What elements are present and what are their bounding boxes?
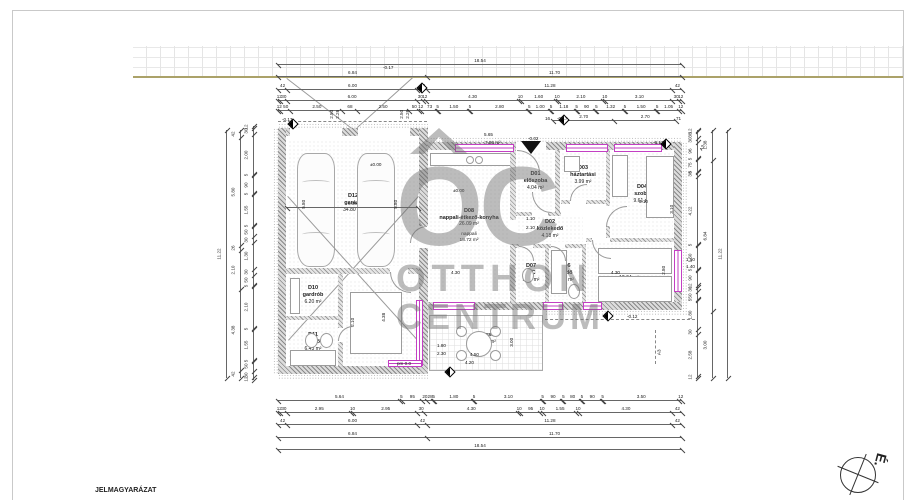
annotation-label: 1.80 xyxy=(437,344,446,349)
dimension-segment: 4.22 xyxy=(698,177,702,245)
room-label: 4.04 m² xyxy=(527,185,544,192)
dimension-segment: 1.32 xyxy=(597,111,624,115)
dimension-label: 95 xyxy=(410,395,415,400)
kitchen-sink xyxy=(475,156,483,164)
annotation-label: 2.50 xyxy=(400,110,405,119)
dimension-label: 4.30 xyxy=(468,95,477,100)
garage-door-opening xyxy=(358,128,410,136)
dimension-segment: 90 xyxy=(582,401,602,405)
annotation-label: 2.26 xyxy=(336,110,341,119)
pavement-texture xyxy=(133,46,903,77)
dimension-segment: 6.84 xyxy=(713,161,717,312)
dimension-label: 5 xyxy=(689,299,694,302)
dimension-label: 6.00 xyxy=(348,95,357,100)
dimension-segment: 3.00 xyxy=(713,312,717,378)
dimension-chain: 12302.0059051.55550301.30305052.1051.555… xyxy=(253,126,258,380)
annotation-label: 7.80 m² xyxy=(485,141,501,146)
dimension-label: 5 xyxy=(245,360,250,363)
dimension-chain: 11.22 xyxy=(226,130,231,378)
dimension-label: 11.28 xyxy=(544,419,555,424)
dimension-label: 4.30 xyxy=(621,407,630,412)
dimension-segment: 2.10 xyxy=(254,286,258,328)
dimension-label: 68 xyxy=(347,105,352,110)
dimension-segment: 11.22 xyxy=(728,130,732,378)
dimension-label: 30 xyxy=(689,330,694,335)
annotation-label: -0.02 xyxy=(528,137,538,142)
dimension-label: 1.55 xyxy=(556,407,565,412)
dimension-label: 12 xyxy=(689,375,694,380)
dimension-segment: 1.55 xyxy=(254,195,258,226)
annotation-label: 4.30 xyxy=(451,271,460,276)
dimension-label: 3.50 xyxy=(637,395,646,400)
annotation-label: -0.17 xyxy=(282,118,292,123)
dimension-chain: 18.54 xyxy=(278,449,682,454)
dimension-segment: 3.10 xyxy=(475,401,543,405)
annotation-label: 4.20 xyxy=(465,361,474,366)
dimension-segment: 42 xyxy=(418,425,427,429)
annotation-label: -0.17 xyxy=(383,66,393,71)
window-marker xyxy=(433,302,475,310)
dimension-label: 11.70 xyxy=(549,71,560,76)
room-label: D02 xyxy=(545,219,555,226)
dimension-label: 30 xyxy=(245,237,250,242)
dimension-segment: 1.80 xyxy=(434,401,473,405)
dimension-segment: 11.70 xyxy=(427,438,682,442)
dimension-label: 1.50 xyxy=(637,105,646,110)
annotation-label: 2.26 xyxy=(406,110,411,119)
room-label: 26.09 m² xyxy=(459,221,479,228)
door-opening xyxy=(510,220,516,244)
room-label: D10 xyxy=(308,285,318,292)
terrace-chair xyxy=(490,326,501,337)
partition xyxy=(555,150,560,216)
dimension-label: 42 xyxy=(675,407,680,412)
dimension-label: 6.00 xyxy=(348,202,357,207)
dimension-label: 1.55 xyxy=(245,206,250,215)
dimension-label: 11.22 xyxy=(218,248,223,259)
dimension-label: 1.80 xyxy=(689,311,694,320)
dimension-label: 18.54 xyxy=(474,59,486,64)
dimension-label: 2.00 xyxy=(245,150,250,159)
partition xyxy=(582,246,586,302)
bed xyxy=(598,276,672,302)
dimension-chain: 2.702.70 xyxy=(553,120,676,125)
annotation-label: 1.50 xyxy=(686,258,695,263)
dimension-label: 2.50 xyxy=(379,105,388,110)
dimension-label: 1.18 xyxy=(559,105,568,110)
room-label: 4.18 m² xyxy=(542,233,559,240)
dashed-section-line xyxy=(655,330,656,364)
room-label: 18.72 m² xyxy=(460,238,479,244)
partition xyxy=(286,316,338,320)
annotation-label: 3.00 xyxy=(510,338,515,347)
dimension-segment: 95 xyxy=(402,401,423,405)
dimension-label: 5 xyxy=(473,395,476,400)
dimension-label: 1.30 xyxy=(245,252,250,261)
partition xyxy=(338,274,343,366)
dimension-label: 2.50 xyxy=(312,105,321,110)
dimension-label: 90 xyxy=(584,105,589,110)
dimension-label: 26 xyxy=(232,245,237,250)
annotation-label: -0.17 xyxy=(653,141,663,146)
dimension-label: 80 xyxy=(570,395,575,400)
terrace-chair xyxy=(490,350,501,361)
dimension-label: 1.05 xyxy=(664,105,673,110)
dimension-label: 1.60 xyxy=(534,95,543,100)
dimension-chain: 426.004211.2842 xyxy=(278,89,682,94)
floor-plan-sheet: OC OTTHON CENTRUM JELMAGYARÁZAT É. D12ga… xyxy=(0,0,915,500)
dimension-chain: 5.64595202851.8053.1059058059053.5012 xyxy=(278,400,682,405)
dimension-label: 75 xyxy=(689,163,694,168)
annotation-label: -0.12 xyxy=(627,315,637,320)
annotation-label: ±0.00 xyxy=(453,189,464,194)
dimension-label: 1.50 xyxy=(449,105,458,110)
dimension-label: 90 xyxy=(550,395,555,400)
dimension-label: 18.54 xyxy=(474,444,486,449)
annotation-label: 2.10 xyxy=(526,226,535,231)
dimension-label: 42 xyxy=(232,372,237,377)
sheet-border-right xyxy=(903,10,904,500)
room-label: előszoba xyxy=(524,178,548,185)
annotation-label: 3.10 xyxy=(639,200,648,205)
dimension-label: 95 xyxy=(528,407,533,412)
dimension-segment: 2.95 xyxy=(287,413,351,417)
annotation-label: 16 xyxy=(545,117,550,122)
wall-left xyxy=(278,128,286,374)
dimension-label: 5 xyxy=(550,105,553,110)
dashed-terrain-line xyxy=(545,319,695,320)
dimension-label: 50 xyxy=(245,364,250,369)
dimension-segment: 4.30 xyxy=(426,101,519,105)
dimension-label: 5 xyxy=(245,225,250,228)
dimension-label: 6.84 xyxy=(348,432,357,437)
dimension-label: 3.10 xyxy=(504,395,513,400)
annotation-label: 2.80 xyxy=(662,266,667,275)
annotation-label: pm 0.0 xyxy=(397,362,411,367)
dimension-label: 12 xyxy=(245,376,250,381)
dimension-label: 2.10 xyxy=(576,95,585,100)
dimension-label: 96 xyxy=(689,148,694,153)
room-label: közlekedő xyxy=(537,226,564,233)
dimension-segment: 73 xyxy=(422,111,437,115)
kitchen-sink xyxy=(466,156,474,164)
dimension-segment: 12 xyxy=(698,376,702,378)
window-marker xyxy=(543,302,563,310)
dimension-segment: 42 xyxy=(673,413,682,417)
dimension-segment: 42 xyxy=(673,425,682,429)
corner-window-marker xyxy=(416,300,423,366)
dimension-label: 50 xyxy=(245,278,250,283)
dimension-label: 12 xyxy=(678,395,683,400)
dimension-label: 42 xyxy=(675,84,680,89)
dimension-segment: 1.55 xyxy=(543,413,577,417)
room-label: háztartási xyxy=(570,172,596,179)
dimension-label: 3.00 xyxy=(704,340,709,349)
dimension-label: 3.10 xyxy=(635,95,644,100)
wall-bottom-left xyxy=(278,366,428,374)
dimension-label: 12 xyxy=(678,105,683,110)
annotation-label: 3.10 xyxy=(670,205,675,214)
annotation-label: -0.17 xyxy=(557,117,567,122)
toilet xyxy=(522,268,534,283)
sheet-border-left xyxy=(12,10,13,500)
dimension-label: 30 xyxy=(689,138,694,143)
dimension-label: 4.22 xyxy=(689,206,694,215)
annotation-label: 2.10 xyxy=(351,318,356,327)
dimension-segment: 2.58 xyxy=(698,335,702,377)
dimension-label: 5 xyxy=(562,395,565,400)
partition xyxy=(545,248,549,302)
dimension-chain: 123830965755304.2251.5059012305051.80302… xyxy=(697,130,702,378)
dimension-segment: 1.05 xyxy=(658,111,680,115)
annotation-label: 4.30 xyxy=(611,271,620,276)
room-label: D08 xyxy=(464,208,474,215)
dimension-segment: 1.38 xyxy=(713,130,717,161)
dimension-label: 5 xyxy=(689,244,694,247)
dimension-segment: 68 xyxy=(343,111,357,115)
dimension-label: 6.84 xyxy=(348,71,357,76)
dimension-label: 1.32 xyxy=(606,105,615,110)
annotation-label: ±0.00 xyxy=(370,163,381,168)
dimension-label: 73 xyxy=(427,105,432,110)
dimension-label: 4.30 xyxy=(467,407,476,412)
annotation-label: 71 xyxy=(676,117,681,122)
washbasin xyxy=(320,333,333,348)
dimension-chain: 1.386.843.00 xyxy=(712,130,717,378)
dimension-segment: 95 xyxy=(520,413,541,417)
dimension-label: 30 xyxy=(689,287,694,292)
dimension-label: 11.70 xyxy=(549,432,560,437)
annotation-label: 1.10 xyxy=(526,217,535,222)
dimension-segment: 2.80 xyxy=(470,111,528,115)
window-marker xyxy=(674,250,682,292)
dimension-label: 5 xyxy=(245,174,250,177)
dimension-chain: 426.004211.2842 xyxy=(278,424,682,429)
dimension-label: 6.84 xyxy=(704,232,709,241)
room-label: gardrób xyxy=(303,292,324,299)
dimension-label: 90 xyxy=(590,395,595,400)
dimension-label: 50 xyxy=(245,229,250,234)
dimension-segment: 4.30 xyxy=(424,413,518,417)
dimension-segment: 6.00 xyxy=(287,425,418,429)
annotation-label: 5.80 xyxy=(394,200,399,209)
dimension-label: 5 xyxy=(245,328,250,331)
dimension-chain: 6.8411.70 xyxy=(278,76,682,81)
window-marker xyxy=(566,144,608,152)
dimension-chain: 18.54 xyxy=(278,64,682,69)
dimension-label: 2.70 xyxy=(641,115,650,120)
annotation-label: 5.80 xyxy=(302,200,307,209)
dimension-label: 5.64 xyxy=(335,395,344,400)
insulation-strip xyxy=(278,374,428,379)
dimension-segment: 18.54 xyxy=(278,65,682,69)
dimension-label: 5.80 xyxy=(232,187,237,196)
garage-door-opening xyxy=(290,128,342,136)
washbasin xyxy=(305,333,318,348)
dimension-label: 30 xyxy=(245,270,250,275)
annotation-label: 4.50 xyxy=(470,353,479,358)
dimension-segment: 2.95 xyxy=(354,413,418,417)
dimension-segment: 12 xyxy=(680,111,683,115)
entrance-marker xyxy=(521,141,541,154)
room-label: nappali-étkező-konyha xyxy=(439,215,498,222)
dimension-segment: 90 xyxy=(543,401,563,405)
dimension-segment: 1.55 xyxy=(254,329,258,360)
dimension-chain: 6.8411.70 xyxy=(278,437,682,442)
annotation-label: 4.38 xyxy=(382,313,387,322)
window-marker xyxy=(583,302,602,310)
dimension-label: 5 xyxy=(528,105,531,110)
annotation-label: 2.30 xyxy=(437,352,446,357)
dimension-segment: 1.30 xyxy=(254,243,258,269)
dimension-segment: 12 xyxy=(679,401,682,405)
dimension-label: 42 xyxy=(232,131,237,136)
dimension-label: 1.00 xyxy=(536,105,545,110)
dimension-label: 90 xyxy=(245,182,250,187)
annotation-label: 2.50 xyxy=(330,110,335,119)
annotation-label: 5.65 xyxy=(484,133,493,138)
dimension-label: 1.55 xyxy=(245,340,250,349)
dimension-segment: 3.50 xyxy=(603,401,679,405)
dimension-label: 11.28 xyxy=(544,84,555,89)
dimension-label: 2.10 xyxy=(245,303,250,312)
toilet xyxy=(568,284,580,299)
dimension-label: 30 xyxy=(689,172,694,177)
sheet-border-top xyxy=(12,10,904,11)
dimension-segment: 5.64 xyxy=(278,401,401,405)
dimension-label: 1.80 xyxy=(449,395,458,400)
dashed-line-garage-front xyxy=(278,121,427,122)
annotation-label: A3 xyxy=(658,349,663,355)
dimension-label: 42 xyxy=(675,419,680,424)
dimension-label: 6.00 xyxy=(348,419,357,424)
partition xyxy=(606,150,610,242)
dimension-label: 2.58 xyxy=(689,351,694,360)
dimension-label: 6.00 xyxy=(348,84,357,89)
bed xyxy=(350,292,402,354)
dimension-segment: 1.50 xyxy=(438,111,469,115)
terrace-chair xyxy=(456,326,467,337)
dimension-label: 5 xyxy=(245,193,250,196)
insulation-strip xyxy=(682,142,687,310)
wardrobe xyxy=(612,155,628,197)
dimension-label: 5 xyxy=(689,157,694,160)
dimension-chain: 12302.95102.95304.301095101.55104.3042 xyxy=(278,412,682,417)
dimension-label: 5 xyxy=(245,284,250,287)
dimension-segment: 1.00 xyxy=(530,111,551,115)
bathtub xyxy=(290,350,336,366)
legend-title: JELMAGYARÁZAT xyxy=(95,487,156,494)
dimension-segment: 12 xyxy=(254,378,258,380)
annotation-label: 1.40 xyxy=(686,265,695,270)
dimension-segment: 80 xyxy=(564,401,581,405)
dimension-chain: 11.22 xyxy=(727,130,732,378)
dimension-label: 4.38 xyxy=(232,325,237,334)
dimension-segment: 2.00 xyxy=(254,134,258,174)
dimension-segment: 4.30 xyxy=(579,413,673,417)
dimension-label: 90 xyxy=(689,275,694,280)
room-D08: D08nappali-étkező-konyha26.09 m²nappali1… xyxy=(429,152,509,300)
dimension-segment: 2.70 xyxy=(615,121,677,125)
dimension-label: 2.95 xyxy=(315,407,324,412)
dimension-segment: 11.70 xyxy=(427,77,682,81)
dimension-label: 5 xyxy=(595,105,598,110)
dimension-segment: 11.22 xyxy=(227,130,231,378)
dimension-label: 5 xyxy=(656,105,659,110)
dimension-segment: 42 xyxy=(278,425,287,429)
dimension-label: 2.80 xyxy=(495,105,504,110)
dimension-segment: 6.84 xyxy=(278,438,427,442)
dimension-label: 12 xyxy=(678,95,683,100)
insulation-strip xyxy=(545,310,687,315)
dimension-chain: 12306.0030124.30101.60102.10103.103012 xyxy=(278,100,682,105)
dimension-label: 30 xyxy=(245,129,250,134)
washing-machine xyxy=(564,156,580,172)
dimension-label: 2.10 xyxy=(232,265,237,274)
shelf xyxy=(290,278,300,314)
dimension-segment: 6.84 xyxy=(278,77,427,81)
dimension-label: 11.22 xyxy=(719,248,724,259)
dimension-label: 2.95 xyxy=(381,407,390,412)
dimension-segment: 11.28 xyxy=(427,425,673,429)
dimension-segment: 18.54 xyxy=(278,450,682,454)
dimension-label: 2.70 xyxy=(579,115,588,120)
